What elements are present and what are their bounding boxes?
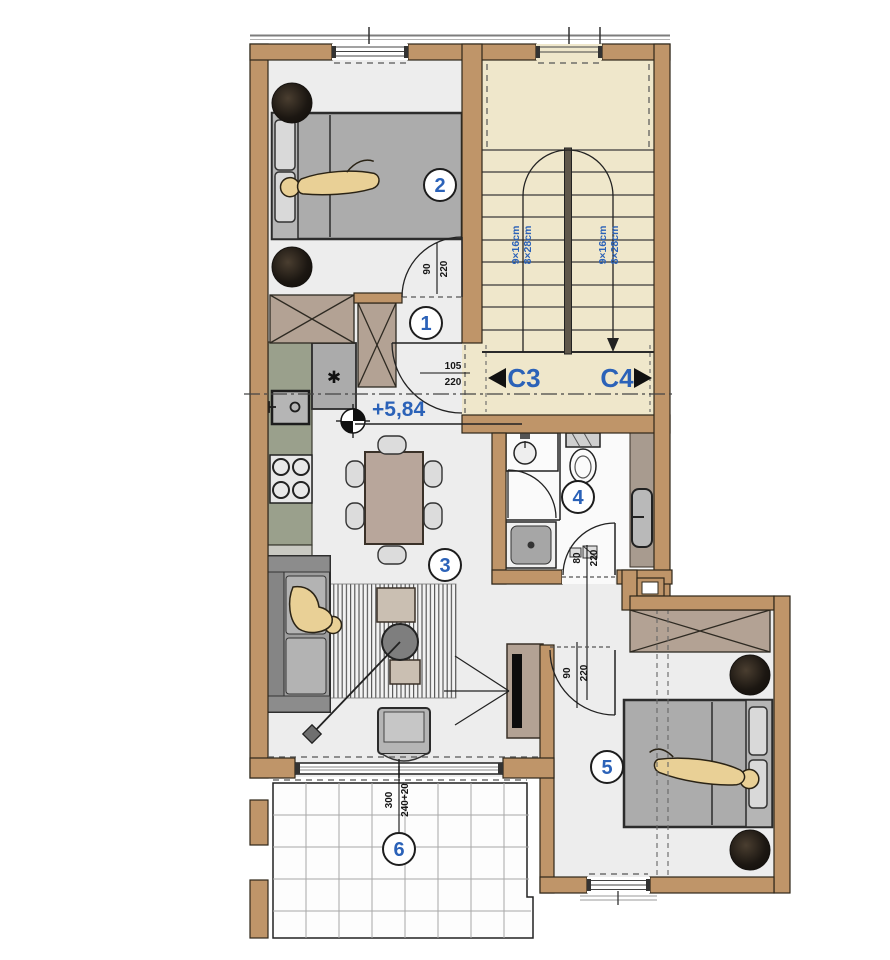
wall-bedroom2-south (354, 293, 402, 303)
svg-text:4: 4 (572, 487, 584, 509)
room-marker-1: 1 (410, 307, 442, 339)
room-marker-5: 5 (591, 751, 623, 783)
appliance-symbol: ✱ (327, 368, 341, 387)
svg-text:5: 5 (601, 757, 612, 779)
pillow (749, 707, 767, 755)
floor-plan-canvas: 9×16cm 8×28cm 9×16cm 8×28cm ✱ (0, 0, 890, 960)
wall-bathroom-left (492, 433, 506, 584)
wall-living-bottom-stub (503, 758, 554, 778)
door-height-label: 220 (589, 549, 600, 566)
wall-bathroom-bottom (492, 570, 562, 584)
door-width-label: 105 (445, 361, 462, 372)
stair-riser-label-left: 9×16cm (510, 226, 522, 265)
dark-plant-circle (272, 247, 312, 287)
door-height-label: 220 (439, 260, 450, 277)
wall-left-outer (250, 44, 268, 778)
stair-tread-label-right: 8×28cm (609, 226, 621, 265)
section-marker-c4: C4 (600, 363, 634, 393)
balcony-dim-b: 240+20 (400, 783, 411, 817)
duct (642, 582, 658, 594)
door-height-label: 220 (445, 377, 462, 388)
sofa (268, 556, 330, 712)
dining-table (365, 452, 423, 544)
dark-plant-circle (730, 655, 770, 695)
wall-bedroom5-top (630, 596, 774, 610)
tap-icon (520, 433, 530, 439)
wall-right-outer (654, 44, 670, 600)
dark-plant-circle (272, 83, 312, 123)
kitchen-counter (268, 342, 312, 545)
pillow (275, 120, 295, 170)
door-width-label: 90 (562, 667, 573, 679)
door-width-label: 90 (422, 263, 433, 275)
shower (506, 522, 556, 568)
room-marker-2: 2 (424, 169, 456, 201)
door-width-label: 80 (572, 552, 583, 564)
wardrobe (358, 303, 396, 387)
balcony-dim-a: 300 (384, 791, 395, 808)
bedroom5-window (580, 874, 657, 905)
coffee-table (390, 660, 420, 684)
wall-bedroom5-bottom (650, 877, 774, 893)
wall-living-bottom-stub (250, 758, 295, 778)
wardrobe (270, 295, 354, 343)
stair-divider-wall (565, 148, 572, 354)
room-marker-3: 3 (429, 549, 461, 581)
door-height-label: 220 (579, 664, 590, 681)
wall-stair-divider (462, 44, 482, 343)
svg-text:6: 6 (393, 839, 404, 861)
tv-screen (512, 654, 522, 728)
wall-top (250, 44, 332, 60)
stair-riser-label-right: 9×16cm (597, 226, 609, 265)
svg-text:1: 1 (420, 313, 431, 335)
elevation-label: +5,84 (372, 398, 425, 421)
wall-bedroom5-bottom (540, 877, 587, 893)
toilet-tank (566, 433, 600, 447)
wardrobe (630, 610, 770, 652)
stair-tread-label-left: 8×28cm (522, 226, 534, 265)
svg-text:3: 3 (439, 555, 450, 577)
svg-text:2: 2 (434, 175, 445, 197)
balcony-pier (250, 800, 268, 845)
site-lines (250, 27, 670, 45)
dark-plant-circle (730, 830, 770, 870)
entry-threshold-floor (462, 343, 482, 415)
armchair (378, 708, 430, 761)
wall-bedroom5-right (774, 596, 790, 893)
room-marker-6: 6 (383, 833, 415, 865)
coffee-table (377, 588, 415, 622)
floor-plan-drawing: 9×16cm 8×28cm 9×16cm 8×28cm ✱ (0, 0, 890, 960)
balcony-pier (250, 880, 268, 938)
room-marker-4: 4 (562, 481, 594, 513)
section-marker-c3: C3 (507, 363, 540, 393)
